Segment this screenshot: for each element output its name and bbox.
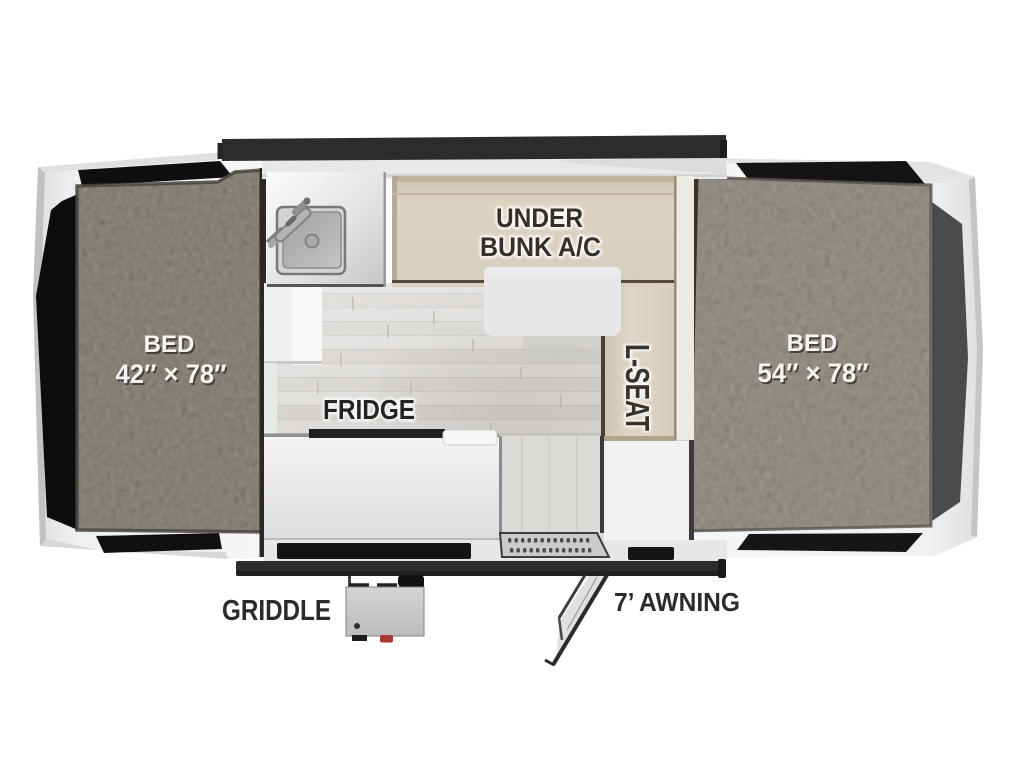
svg-text:BED: BED [144,331,195,358]
svg-text:L-SEAT: L-SEAT [619,344,656,431]
svg-text:UNDER: UNDER [496,203,583,233]
svg-text:BUNK A/C: BUNK A/C [480,232,601,262]
svg-text:FRIDGE: FRIDGE [323,394,415,425]
svg-text:7’ AWNING: 7’ AWNING [614,587,740,617]
svg-text:BED: BED [787,330,838,357]
svg-text:GRIDDLE: GRIDDLE [222,595,331,627]
svg-text:54″ × 78″: 54″ × 78″ [758,358,869,388]
svg-text:42″ × 78″: 42″ × 78″ [116,359,227,389]
